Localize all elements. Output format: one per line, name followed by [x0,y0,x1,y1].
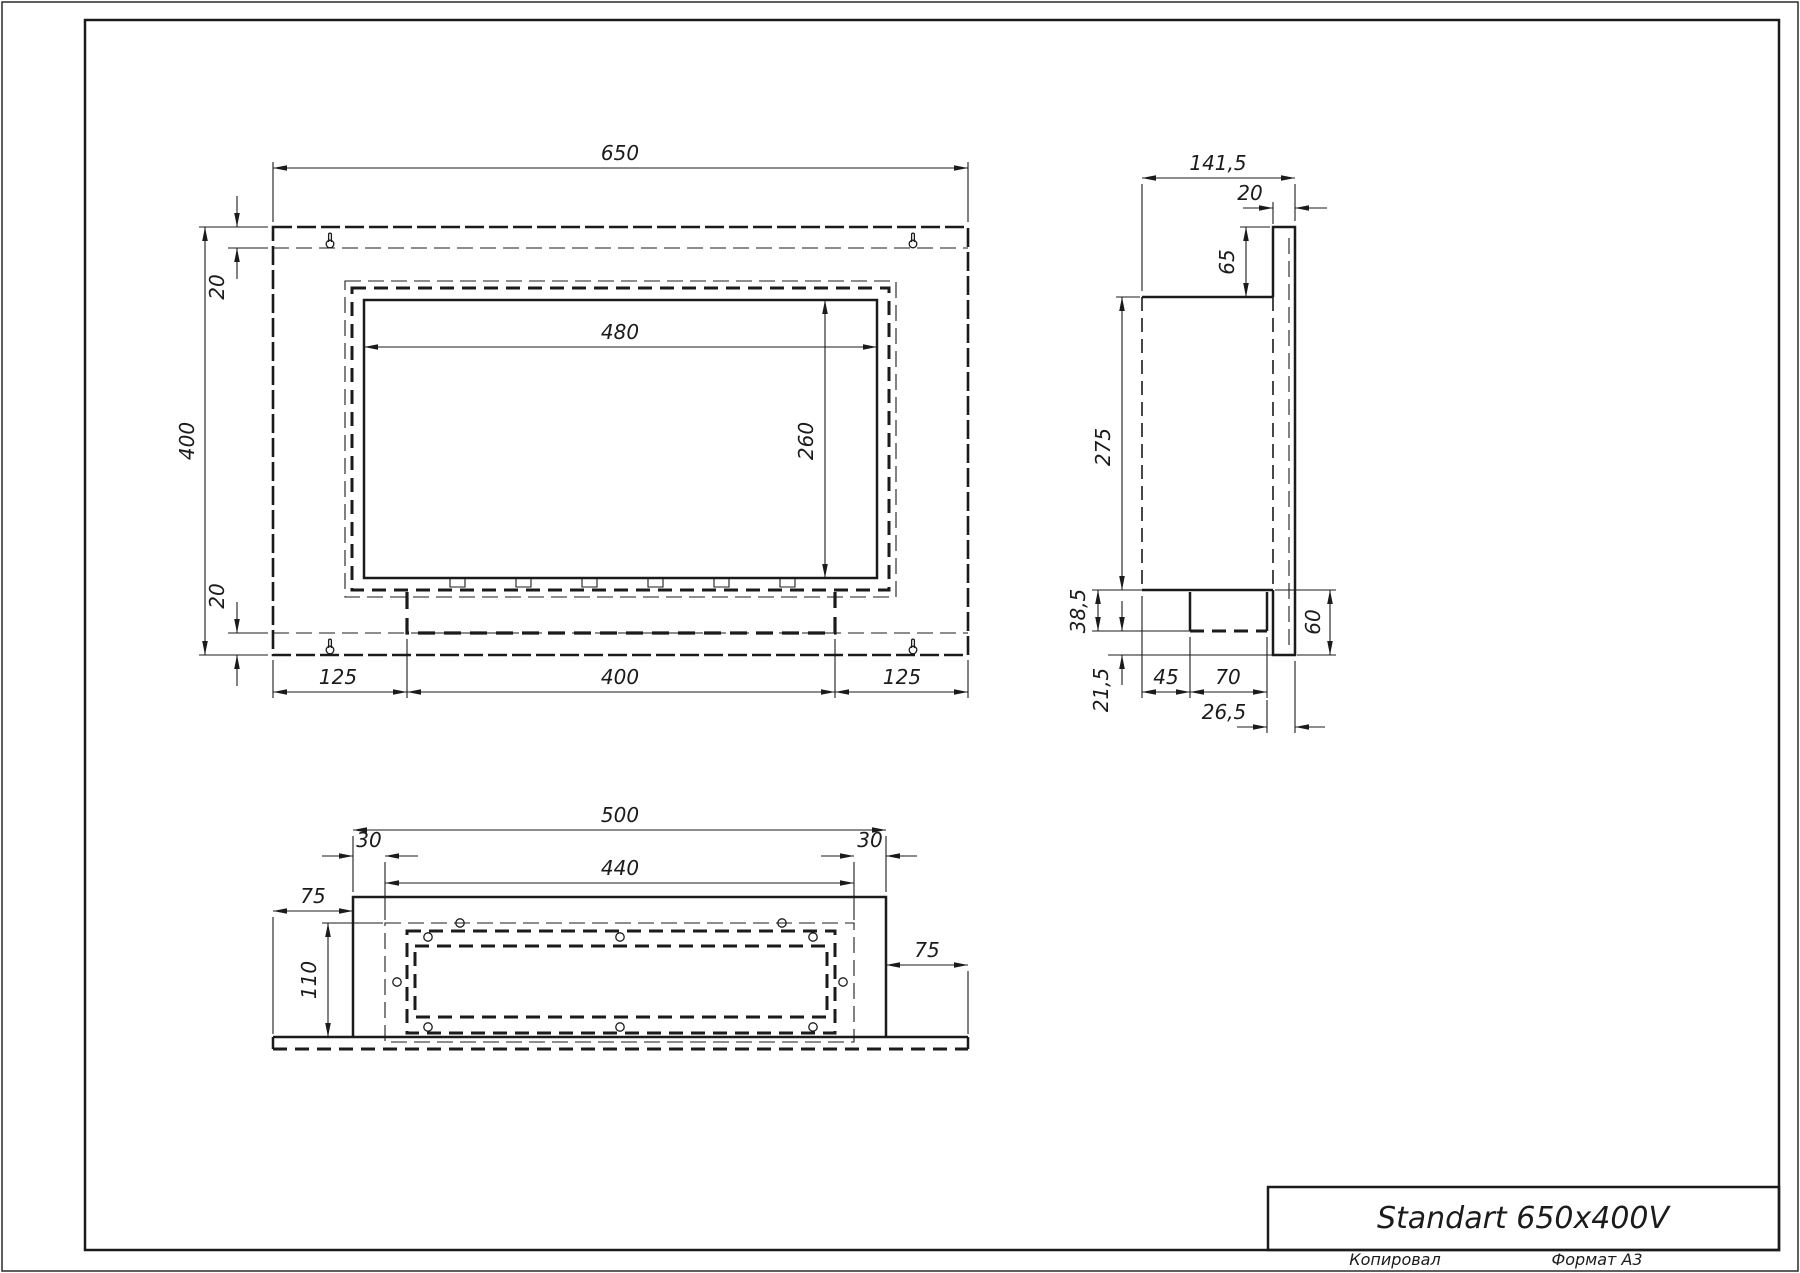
dim-body-height-label: 275 [1091,428,1115,466]
keyhole-mount-slot [909,233,917,248]
dim-inset-left-label: 30 [356,828,381,852]
mounting-hole [616,933,624,941]
dim-front-bottom-offset-label: 20 [205,583,229,608]
front-notches [450,578,795,587]
dim-top-offset-label: 65 [1215,249,1239,274]
dim-tank-width-label: 70 [1215,665,1240,689]
dim-depth-label: 141,5 [1189,151,1246,175]
mounting-hole [424,1023,432,1031]
dim-flange-right-label: 75 [914,938,939,962]
mounting-holes [393,919,847,1031]
dim-front-top-offset-label: 20 [205,274,229,299]
dim-tank-right-label: 26,5 [1202,700,1247,724]
keyhole-mount-slot [909,639,917,654]
technical-drawing: 650 400 20 20 480 260 125 400 125 [0,0,1800,1273]
drawing-sheet: 650 400 20 20 480 260 125 400 125 [0,0,1800,1273]
dim-front-width-label: 650 [601,141,639,165]
dim-flange-thickness-label: 20 [1237,181,1262,205]
mounting-hole [809,1023,817,1031]
keyhole-mount-slot [326,639,334,654]
mounting-hole [424,933,432,941]
dim-inner-width-label: 440 [601,856,639,880]
main-frame [85,20,1779,1250]
front-fuel-tray-hidden [407,592,835,633]
copied-label: Копировал [1349,1250,1440,1269]
dim-flange-left-label: 75 [300,884,325,908]
dim-bottom-depth-label: 110 [297,961,321,999]
mounting-hole [809,933,817,941]
mounting-hole [393,978,401,986]
dim-opening-width-label: 480 [601,320,639,344]
dim-margin-right-label: 125 [883,665,921,689]
dim-burner-width-label: 400 [601,665,639,689]
bottom-burner-hidden [415,946,827,1017]
format-label: Формат A3 [1551,1250,1642,1269]
dim-inset-right-label: 30 [857,828,882,852]
side-flange [1273,227,1295,655]
dim-bottom-gap-label: 21,5 [1089,668,1113,713]
title-block: Standart 650x400V Копировал Формат A3 [1268,1187,1779,1269]
front-view: 650 400 20 20 480 260 125 400 125 [175,141,968,698]
dim-front-height-label: 400 [175,422,199,460]
dim-tank-left-label: 45 [1153,665,1178,689]
keyhole-mount-slot [326,233,334,248]
page-edge [2,2,1798,1271]
mounting-hole [839,978,847,986]
mounting-hole [616,1023,624,1031]
drawing-title: Standart 650x400V [1377,1201,1672,1236]
dim-margin-left-label: 125 [319,665,357,689]
dim-opening-height-label: 260 [794,422,818,460]
dim-bottom-width-label: 500 [601,803,639,827]
side-view: 141,5 20 65 275 38,5 21,5 60 45 [1066,151,1336,733]
drawing-frame [2,2,1798,1271]
bottom-view: 500 30 30 440 75 110 75 [273,803,968,1049]
dim-bottom-height-label: 60 [1301,609,1325,634]
dim-tank-zone-label: 38,5 [1066,589,1090,634]
